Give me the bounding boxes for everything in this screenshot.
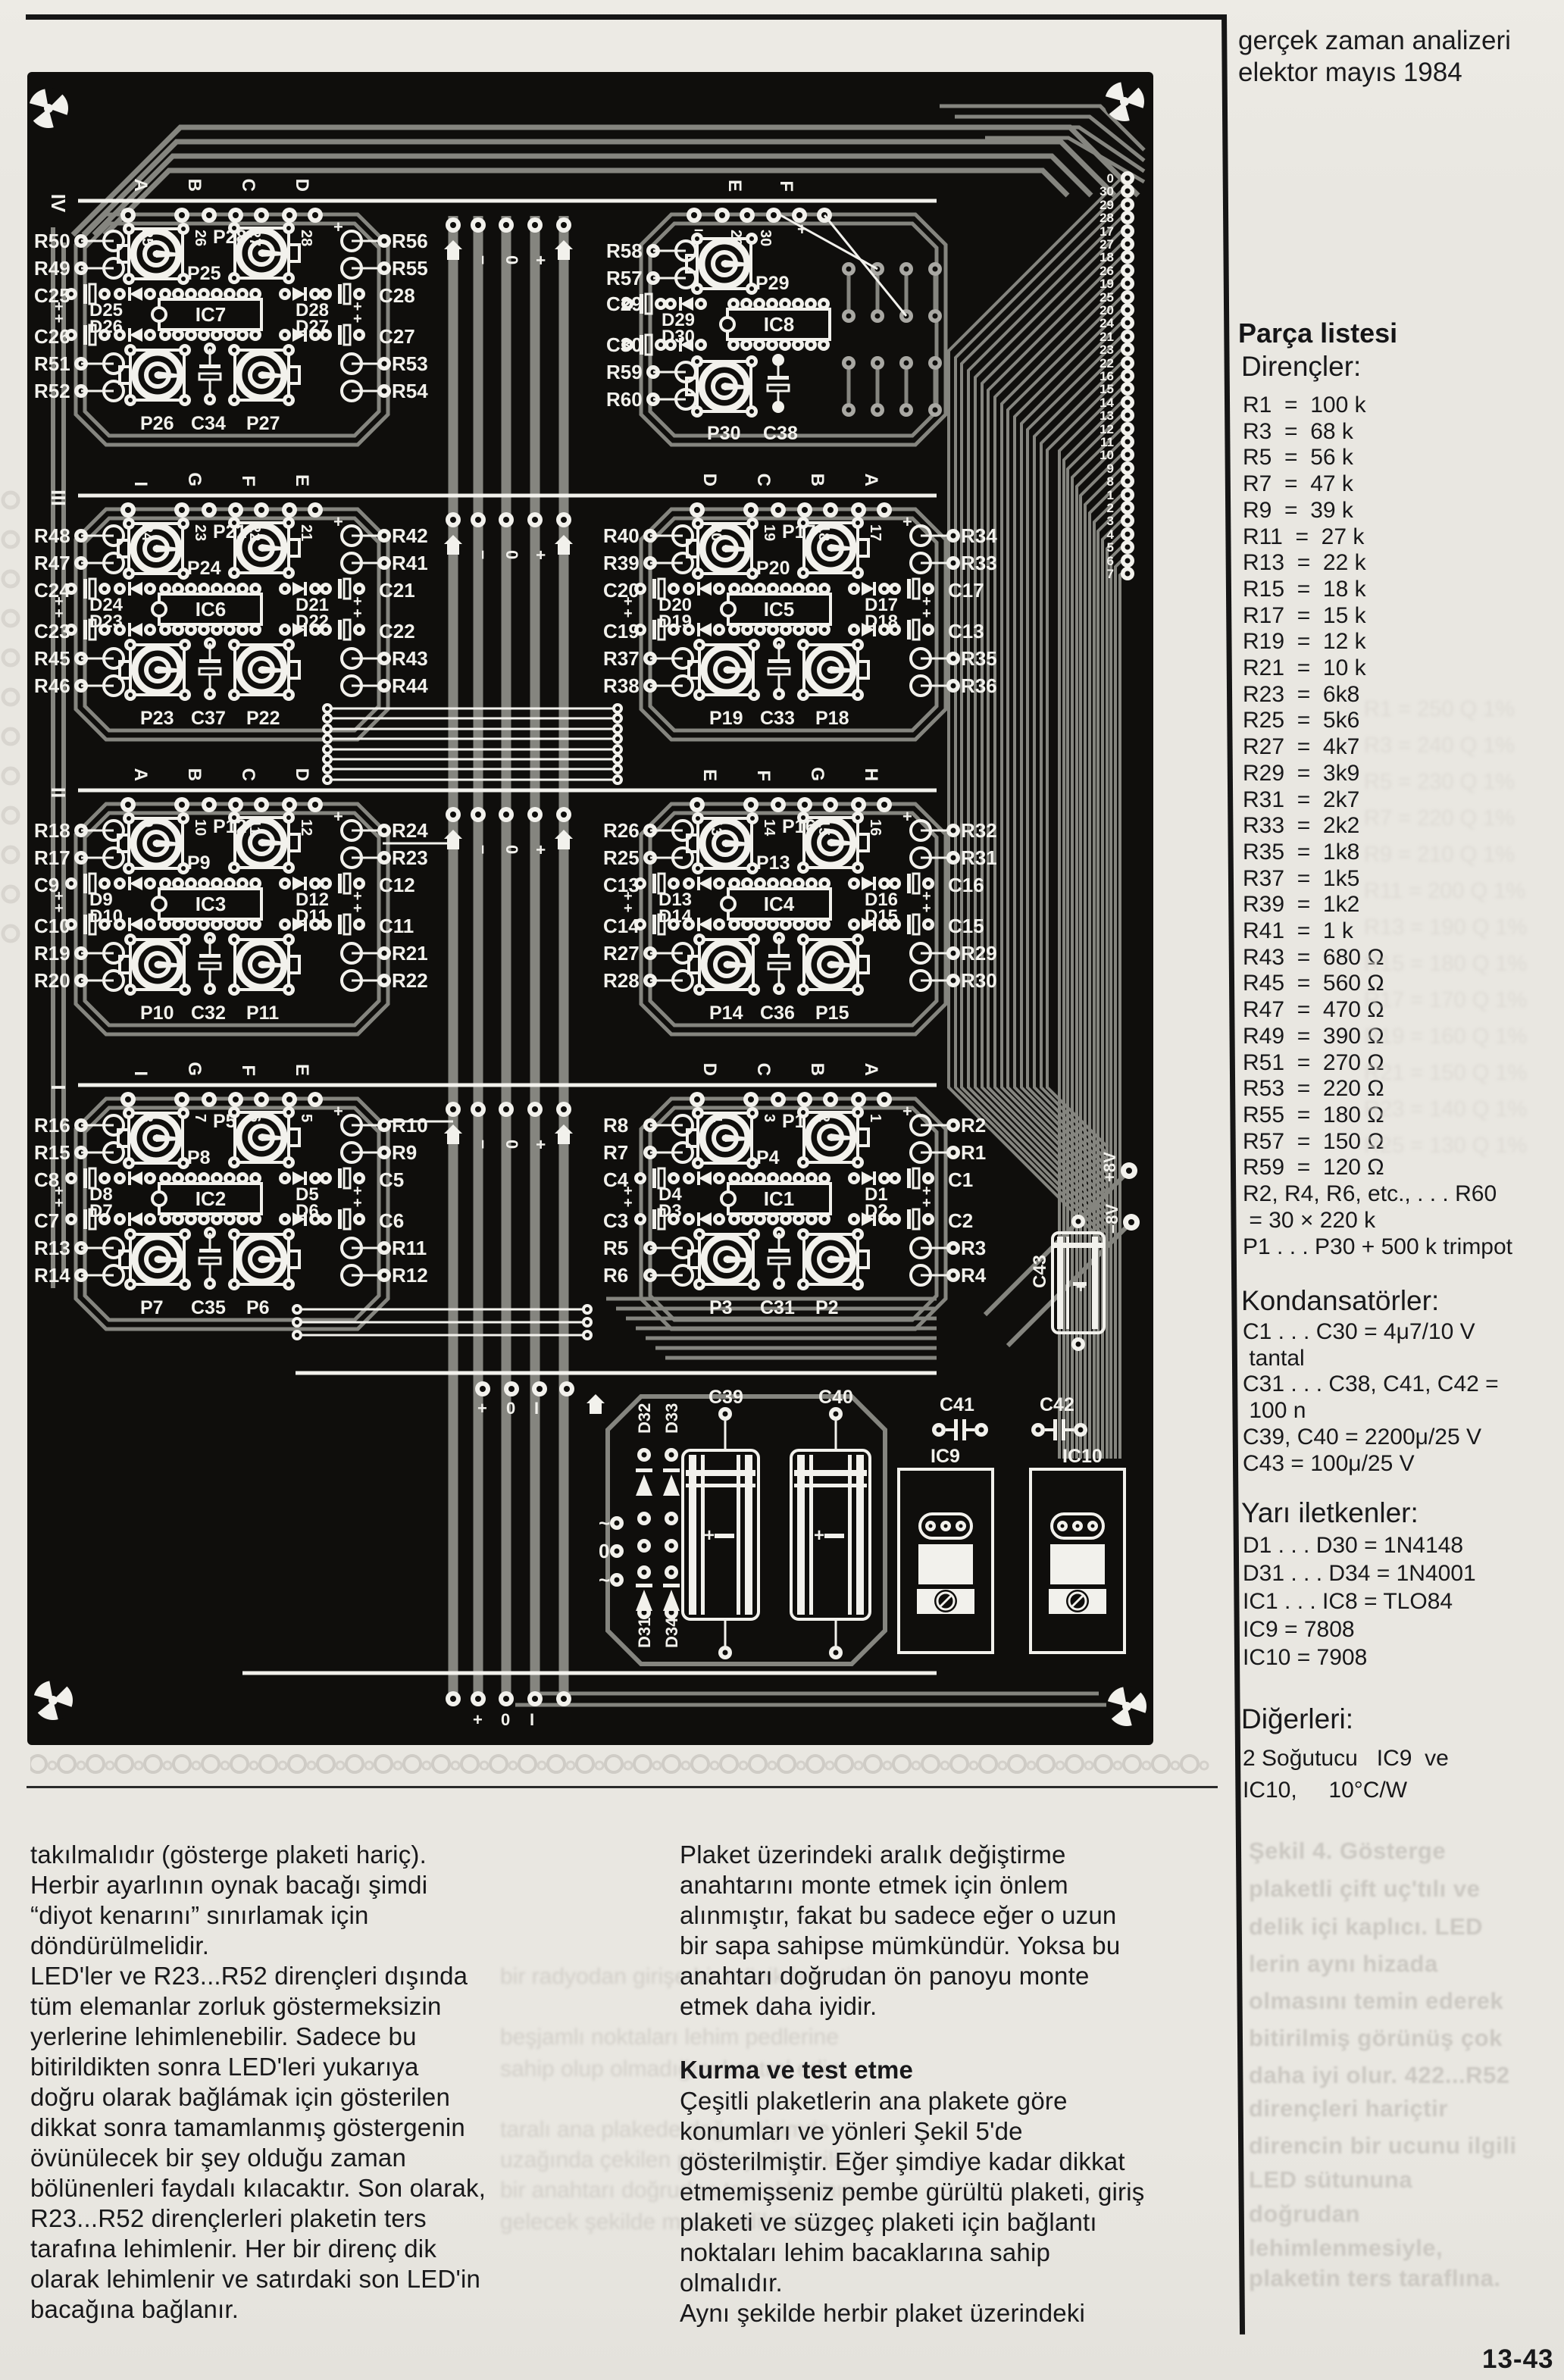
svg-text:A: A [861, 474, 881, 486]
svg-text:+: + [1076, 1278, 1086, 1296]
svg-text:P24: P24 [187, 558, 221, 579]
svg-text:24: 24 [1099, 316, 1114, 330]
svg-text:C23: C23 [34, 620, 70, 643]
svg-text:I: I [130, 481, 151, 486]
svg-text:+: + [624, 1195, 633, 1212]
svg-text:C41: C41 [940, 1394, 974, 1415]
svg-text:D: D [699, 1063, 720, 1076]
svg-text:C3: C3 [603, 1209, 628, 1232]
svg-text:F: F [238, 475, 258, 486]
svg-text:+: + [55, 1195, 64, 1212]
svg-text:19: 19 [761, 524, 777, 541]
svg-text:P1: P1 [782, 1111, 805, 1132]
svg-text:C19: C19 [603, 620, 640, 643]
svg-text:R55: R55 [392, 257, 428, 280]
svg-text:P22: P22 [246, 708, 280, 729]
svg-text:C28: C28 [379, 284, 415, 307]
svg-text:19: 19 [1099, 277, 1114, 291]
svg-text:R43: R43 [392, 647, 428, 670]
svg-text:E: E [724, 180, 745, 192]
svg-text:C25: C25 [34, 284, 70, 307]
svg-text:C16: C16 [948, 874, 984, 896]
svg-text:P4: P4 [756, 1147, 780, 1168]
svg-text:+: + [624, 605, 633, 622]
svg-text:+: + [922, 900, 931, 917]
svg-text:I: I [530, 1710, 534, 1729]
svg-text:C29: C29 [606, 292, 643, 315]
svg-text:0: 0 [502, 550, 521, 559]
svg-text:D: D [292, 768, 312, 781]
svg-text:P20: P20 [756, 558, 790, 579]
svg-text:3: 3 [1107, 514, 1114, 528]
svg-text:C38: C38 [763, 423, 798, 444]
svg-text:+: + [902, 512, 912, 531]
svg-text:P7: P7 [140, 1297, 164, 1318]
svg-text:P28: P28 [213, 227, 247, 248]
svg-text:R54: R54 [392, 380, 428, 402]
svg-text:–8V: –8V [1103, 1204, 1121, 1234]
svg-text:+: + [922, 605, 931, 622]
svg-text:C7: C7 [34, 1209, 59, 1232]
svg-text:P15: P15 [815, 1002, 849, 1024]
svg-text:1: 1 [867, 1114, 884, 1122]
svg-text:R47: R47 [34, 552, 70, 574]
svg-text:P5: P5 [213, 1111, 236, 1132]
svg-text:IC2: IC2 [195, 1187, 226, 1210]
svg-text:IV: IV [47, 194, 70, 213]
svg-text:+: + [704, 1525, 715, 1546]
svg-text:B: B [807, 474, 827, 486]
svg-text:P8: P8 [187, 1147, 211, 1168]
svg-text:~: ~ [599, 1512, 610, 1534]
svg-text:R2: R2 [961, 1114, 986, 1137]
svg-text:R3: R3 [961, 1237, 986, 1259]
svg-text:P16: P16 [782, 816, 815, 837]
svg-text:C11: C11 [379, 915, 414, 937]
svg-text:C15: C15 [948, 915, 984, 937]
svg-text:P25: P25 [187, 263, 221, 284]
svg-text:A: A [130, 179, 151, 192]
svg-text:26: 26 [192, 230, 208, 246]
svg-text:R5: R5 [603, 1237, 628, 1259]
svg-text:P12: P12 [213, 816, 246, 837]
svg-text:C13: C13 [948, 620, 984, 643]
svg-text:R27: R27 [603, 942, 640, 965]
svg-text:+: + [473, 1710, 483, 1729]
svg-text:C12: C12 [379, 874, 415, 896]
svg-text:E: E [292, 1064, 312, 1076]
svg-text:C43: C43 [1030, 1255, 1050, 1288]
svg-text:R28: R28 [603, 969, 640, 992]
svg-text:–: – [474, 1140, 493, 1149]
svg-text:C10: C10 [34, 915, 70, 937]
svg-text:C: C [238, 768, 258, 781]
svg-text:G: G [184, 472, 205, 486]
svg-text:P9: P9 [187, 852, 211, 874]
svg-text:R46: R46 [34, 674, 70, 697]
svg-text:+: + [531, 1140, 550, 1149]
svg-text:C: C [238, 179, 258, 192]
svg-text:C33: C33 [760, 708, 795, 729]
svg-text:R25: R25 [603, 846, 640, 869]
svg-text:5: 5 [298, 1114, 314, 1122]
svg-text:R29: R29 [961, 942, 997, 965]
svg-text:+: + [353, 605, 362, 622]
svg-text:R45: R45 [34, 647, 70, 670]
svg-text:R32: R32 [961, 819, 997, 842]
svg-text:R35: R35 [961, 647, 997, 670]
svg-text:C13: C13 [603, 874, 640, 896]
svg-text:P18: P18 [815, 708, 849, 729]
svg-text:R21: R21 [392, 942, 428, 965]
svg-text:8: 8 [1107, 474, 1114, 489]
svg-text:IC5: IC5 [764, 598, 794, 621]
svg-text:E: E [292, 474, 312, 486]
svg-text:R23: R23 [392, 846, 428, 869]
svg-text:B: B [807, 1063, 827, 1076]
svg-text:P6: P6 [246, 1297, 270, 1318]
svg-text:C35: C35 [191, 1297, 226, 1318]
svg-text:R16: R16 [34, 1114, 70, 1137]
svg-text:+: + [531, 550, 550, 560]
svg-text:+: + [55, 311, 64, 327]
svg-text:R18: R18 [34, 819, 70, 842]
svg-text:P30: P30 [707, 423, 740, 444]
svg-text:+: + [333, 217, 343, 236]
svg-text:R14: R14 [34, 1264, 70, 1287]
svg-text:18: 18 [1099, 250, 1114, 264]
svg-text:R41: R41 [392, 552, 428, 574]
svg-text:R42: R42 [392, 524, 428, 547]
svg-text:R13: R13 [34, 1237, 70, 1259]
svg-text:R1: R1 [961, 1141, 986, 1164]
svg-text:23: 23 [1099, 342, 1114, 357]
svg-text:C31: C31 [760, 1297, 795, 1318]
svg-text:0: 0 [502, 845, 521, 854]
svg-text:R10: R10 [392, 1114, 428, 1137]
svg-text:7: 7 [192, 1114, 208, 1122]
svg-text:C14: C14 [603, 915, 640, 937]
svg-text:D31: D31 [635, 1618, 654, 1648]
svg-text:+: + [353, 311, 362, 327]
svg-text:0: 0 [506, 1399, 515, 1418]
svg-text:IC1: IC1 [764, 1187, 794, 1210]
svg-text:P3: P3 [709, 1297, 733, 1318]
svg-text:+: + [55, 605, 64, 622]
svg-text:IC10: IC10 [1062, 1446, 1103, 1467]
svg-text:P10: P10 [140, 1002, 174, 1024]
svg-text:+: + [624, 900, 633, 917]
svg-text:~: ~ [599, 1568, 610, 1591]
svg-text:13: 13 [1099, 408, 1114, 423]
svg-text:R19: R19 [34, 942, 70, 965]
svg-text:P14: P14 [709, 1002, 743, 1024]
svg-text:R12: R12 [392, 1264, 428, 1287]
svg-text:R24: R24 [392, 819, 428, 842]
svg-text:C32: C32 [191, 1002, 226, 1024]
svg-text:28: 28 [1099, 211, 1114, 225]
svg-text:R48: R48 [34, 524, 70, 547]
svg-text:R60: R60 [606, 388, 643, 411]
svg-text:30: 30 [757, 230, 774, 246]
svg-text:3: 3 [761, 1114, 777, 1122]
svg-text:R20: R20 [34, 969, 70, 992]
svg-text:0: 0 [501, 1710, 510, 1729]
svg-text:R57: R57 [606, 267, 643, 289]
svg-text:IC7: IC7 [195, 303, 226, 326]
svg-text:–: – [474, 550, 493, 559]
svg-text:C40: C40 [818, 1387, 853, 1408]
svg-text:P26: P26 [140, 413, 174, 434]
svg-text:+: + [353, 900, 362, 917]
svg-text:F: F [753, 770, 774, 781]
svg-text:I: I [47, 1084, 70, 1090]
svg-text:0: 0 [599, 1540, 609, 1562]
svg-text:R40: R40 [603, 524, 640, 547]
svg-text:P17: P17 [782, 521, 815, 543]
svg-text:R6: R6 [603, 1264, 628, 1287]
svg-text:R52: R52 [34, 380, 70, 402]
svg-text:+: + [902, 807, 912, 826]
svg-text:R51: R51 [34, 352, 70, 375]
svg-text:P23: P23 [140, 708, 174, 729]
svg-text:14: 14 [761, 819, 777, 837]
svg-text:+: + [353, 1195, 362, 1212]
svg-text:IC6: IC6 [195, 598, 226, 621]
svg-text:G: G [184, 1062, 205, 1076]
svg-text:23: 23 [192, 524, 208, 541]
svg-text:–: – [474, 255, 493, 264]
svg-text:R44: R44 [392, 674, 428, 697]
svg-text:0: 0 [502, 1140, 521, 1149]
svg-text:I: I [534, 1399, 539, 1418]
svg-text:C39: C39 [708, 1387, 743, 1408]
svg-text:R9: R9 [392, 1141, 417, 1164]
svg-text:C36: C36 [760, 1002, 795, 1024]
svg-text:IC4: IC4 [764, 893, 795, 915]
svg-text:+: + [531, 255, 550, 265]
svg-text:P13: P13 [756, 852, 790, 874]
svg-text:C6: C6 [379, 1209, 404, 1232]
svg-text:D33: D33 [662, 1403, 681, 1434]
svg-text:+: + [333, 807, 343, 826]
svg-text:C2: C2 [948, 1209, 973, 1232]
svg-text:C24: C24 [34, 579, 70, 602]
svg-text:R50: R50 [34, 230, 70, 252]
svg-text:10: 10 [1099, 448, 1114, 462]
svg-text:5: 5 [1107, 540, 1114, 555]
svg-text:P21: P21 [213, 521, 247, 543]
svg-text:G: G [807, 767, 827, 781]
svg-text:F: F [776, 180, 796, 192]
svg-text:R11: R11 [392, 1237, 427, 1259]
svg-text:II: II [47, 787, 70, 798]
svg-text:+: + [477, 1399, 487, 1418]
svg-text:C: C [753, 474, 774, 486]
svg-text:P29: P29 [755, 273, 789, 294]
svg-text:0: 0 [502, 255, 521, 264]
svg-text:F: F [238, 1065, 258, 1076]
svg-text:C: C [753, 1063, 774, 1076]
svg-text:C27: C27 [379, 325, 415, 348]
svg-text:+: + [531, 845, 550, 855]
svg-text:10: 10 [192, 819, 208, 836]
svg-text:C30: C30 [606, 333, 643, 356]
svg-text:IC3: IC3 [195, 893, 226, 915]
svg-text:+: + [922, 1195, 931, 1212]
svg-text:C34: C34 [191, 413, 226, 434]
svg-text:R37: R37 [603, 647, 640, 670]
svg-text:D34: D34 [662, 1617, 681, 1648]
svg-text:IC9: IC9 [931, 1446, 960, 1467]
svg-text:D32: D32 [635, 1403, 654, 1434]
svg-text:+: + [333, 512, 343, 531]
svg-text:R38: R38 [603, 674, 640, 697]
svg-text:B: B [184, 179, 205, 192]
svg-text:IC8: IC8 [764, 313, 794, 336]
svg-text:R22: R22 [392, 969, 428, 992]
svg-text:R8: R8 [603, 1114, 628, 1137]
svg-text:+: + [55, 900, 64, 917]
svg-text:R31: R31 [961, 846, 997, 869]
svg-text:R49: R49 [34, 257, 70, 280]
svg-text:C26: C26 [34, 325, 70, 348]
svg-text:R4: R4 [961, 1264, 987, 1287]
svg-text:R36: R36 [961, 674, 997, 697]
svg-text:C20: C20 [603, 579, 640, 602]
svg-text:–: – [474, 845, 493, 854]
svg-text:C5: C5 [379, 1168, 404, 1191]
svg-text:P2: P2 [815, 1297, 839, 1318]
svg-text:R17: R17 [34, 846, 70, 869]
svg-text:III: III [47, 489, 70, 506]
svg-text:D6: D6 [296, 1201, 319, 1221]
svg-text:E: E [699, 769, 720, 781]
svg-text:A: A [130, 768, 151, 781]
svg-text:R33: R33 [961, 552, 997, 574]
svg-text:R56: R56 [392, 230, 428, 252]
svg-text:R26: R26 [603, 819, 640, 842]
svg-text:+: + [814, 1525, 824, 1546]
svg-text:D: D [699, 474, 720, 486]
svg-text:D2: D2 [865, 1201, 888, 1221]
svg-text:R39: R39 [603, 552, 640, 574]
svg-text:C42: C42 [1040, 1394, 1074, 1415]
svg-text:C21: C21 [379, 579, 415, 602]
svg-text:R15: R15 [34, 1141, 70, 1164]
svg-text:C22: C22 [379, 620, 415, 643]
svg-text:D: D [292, 179, 312, 192]
svg-text:A: A [861, 1063, 881, 1076]
svg-text:C1: C1 [948, 1168, 973, 1191]
svg-text:P11: P11 [246, 1002, 279, 1024]
svg-text:R58: R58 [606, 239, 643, 262]
svg-text:B: B [184, 768, 205, 781]
svg-text:30: 30 [1099, 184, 1114, 199]
svg-text:R34: R34 [961, 524, 997, 547]
svg-text:P19: P19 [709, 708, 743, 729]
svg-text:7: 7 [1107, 567, 1114, 581]
svg-text:P27: P27 [246, 413, 280, 434]
svg-text:I: I [130, 1071, 151, 1076]
svg-text:R53: R53 [392, 352, 428, 375]
svg-text:C37: C37 [191, 708, 226, 729]
svg-text:+: + [333, 1102, 343, 1121]
svg-text:+8V: +8V [1100, 1152, 1119, 1182]
svg-text:R30: R30 [961, 969, 997, 992]
svg-text:R59: R59 [606, 361, 643, 383]
svg-text:H: H [861, 768, 881, 781]
svg-text:15: 15 [1099, 382, 1114, 396]
svg-text:C17: C17 [948, 579, 984, 602]
svg-text:R7: R7 [603, 1141, 628, 1164]
svg-text:+: + [902, 1102, 912, 1121]
